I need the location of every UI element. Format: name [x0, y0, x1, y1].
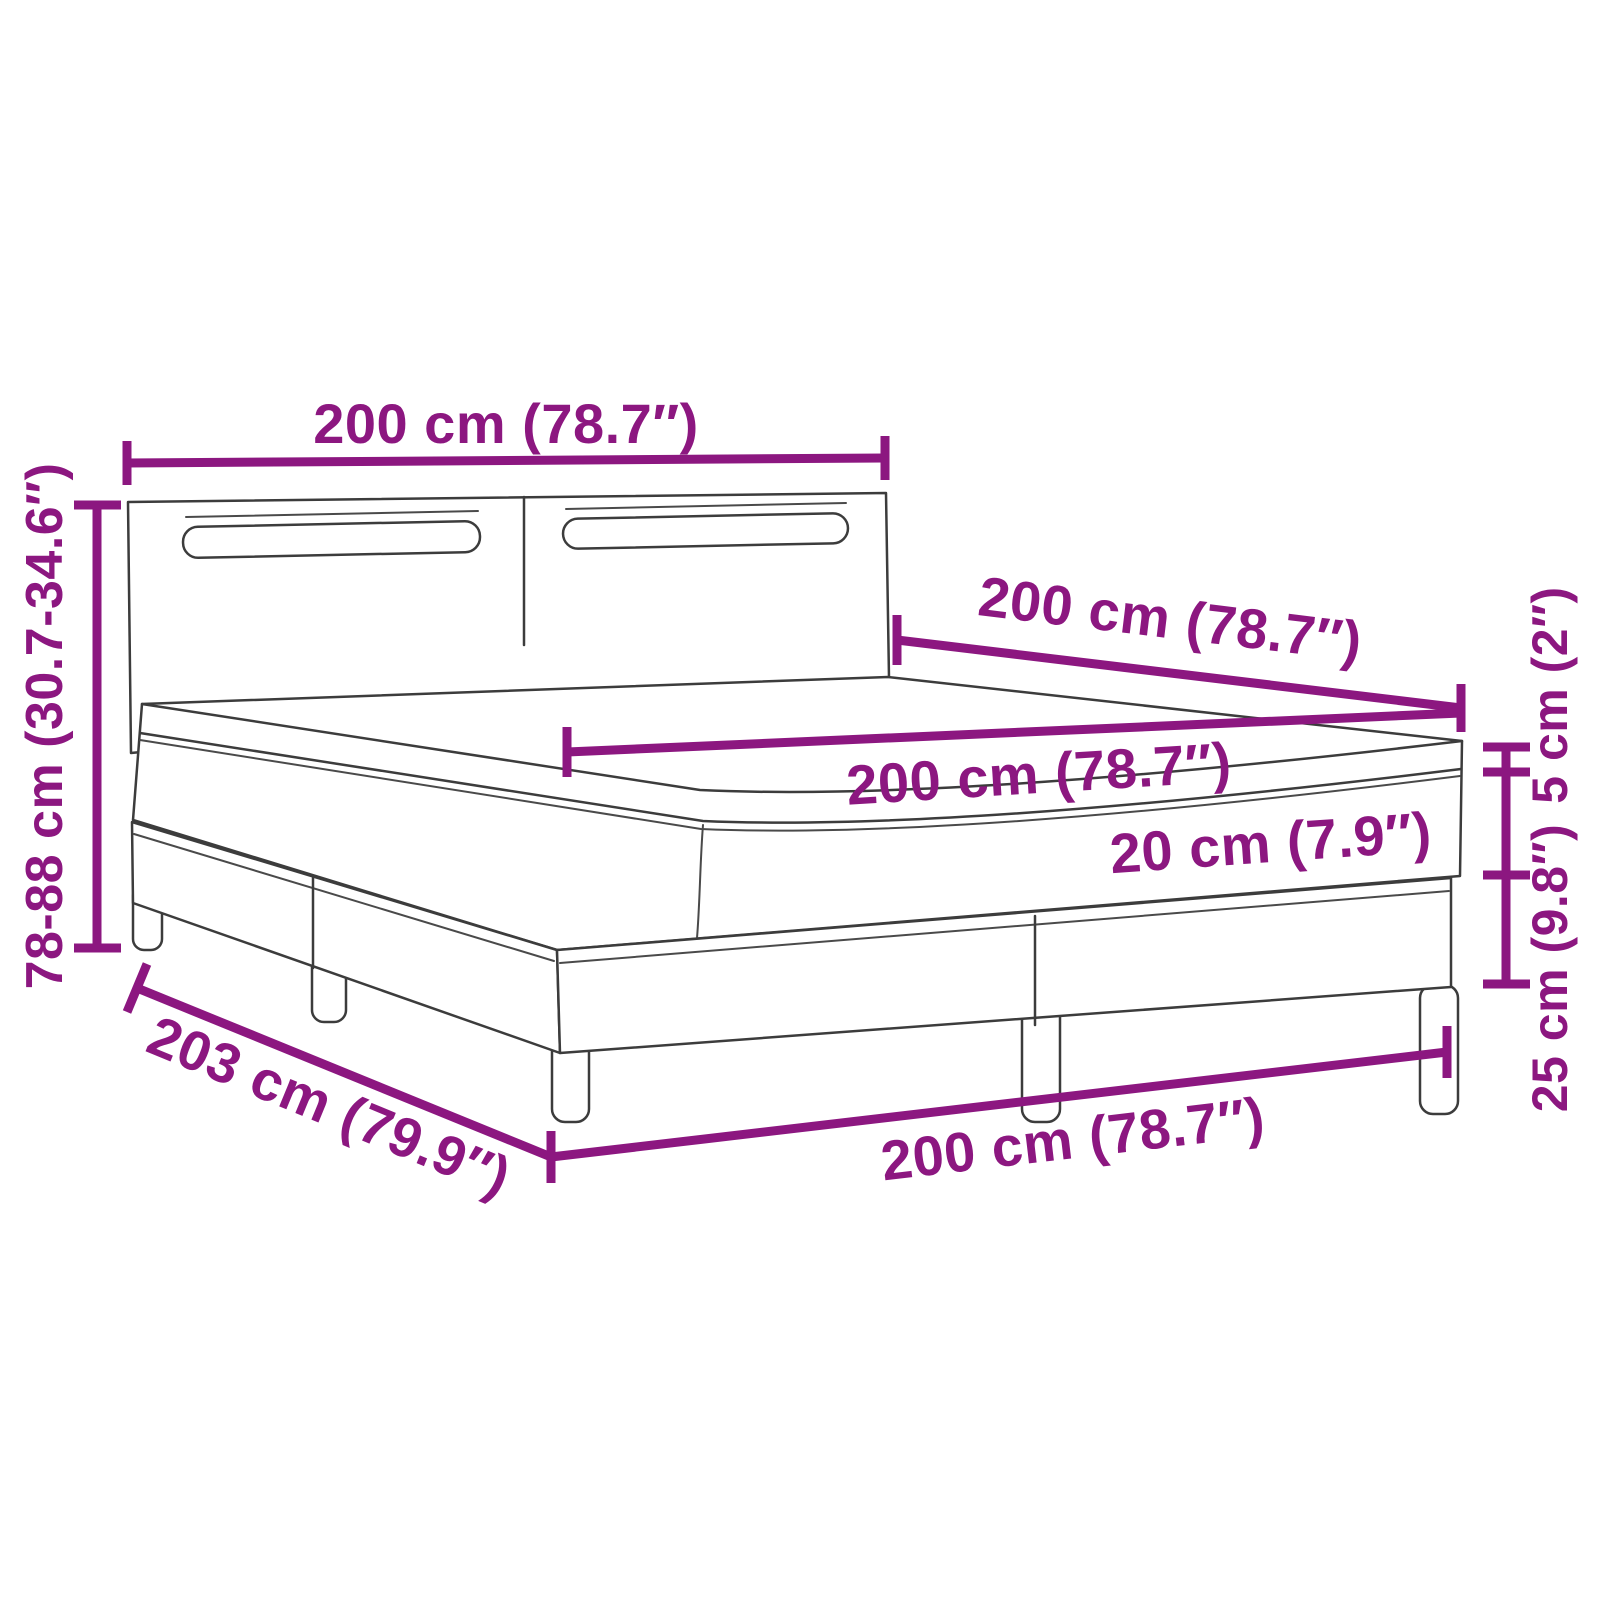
dim-label-base-width: 200 cm (78.7″): [878, 1085, 1268, 1193]
dim-headboard-width: 200 cm (78.7″): [127, 392, 885, 485]
dim-line: [127, 458, 885, 463]
bed-dimension-diagram: 200 cm (78.7″) 78-88 cm (30.7-34.6″) 200…: [0, 0, 1600, 1600]
dim-total-height: 78-88 cm (30.7-34.6″): [16, 463, 121, 990]
diagram-canvas: 200 cm (78.7″) 78-88 cm (30.7-34.6″) 200…: [0, 0, 1600, 1600]
led-slot-opening: [183, 521, 481, 558]
dim-label-base-depth: 203 cm (79.9″): [139, 1003, 520, 1208]
dim-base-width: 200 cm (78.7″): [551, 1026, 1447, 1192]
dim-label-topper-thickness: 5 cm (2″): [1522, 586, 1578, 803]
dim-right-stack: 5 cm (2″) 25 cm (9.8″): [1483, 586, 1578, 1112]
dim-label-base-height: 25 cm (9.8″): [1522, 824, 1578, 1112]
led-slot-opening: [563, 513, 849, 549]
dim-label-headboard-width: 200 cm (78.7″): [313, 392, 699, 455]
dim-label-total-height: 78-88 cm (30.7-34.6″): [16, 463, 74, 990]
